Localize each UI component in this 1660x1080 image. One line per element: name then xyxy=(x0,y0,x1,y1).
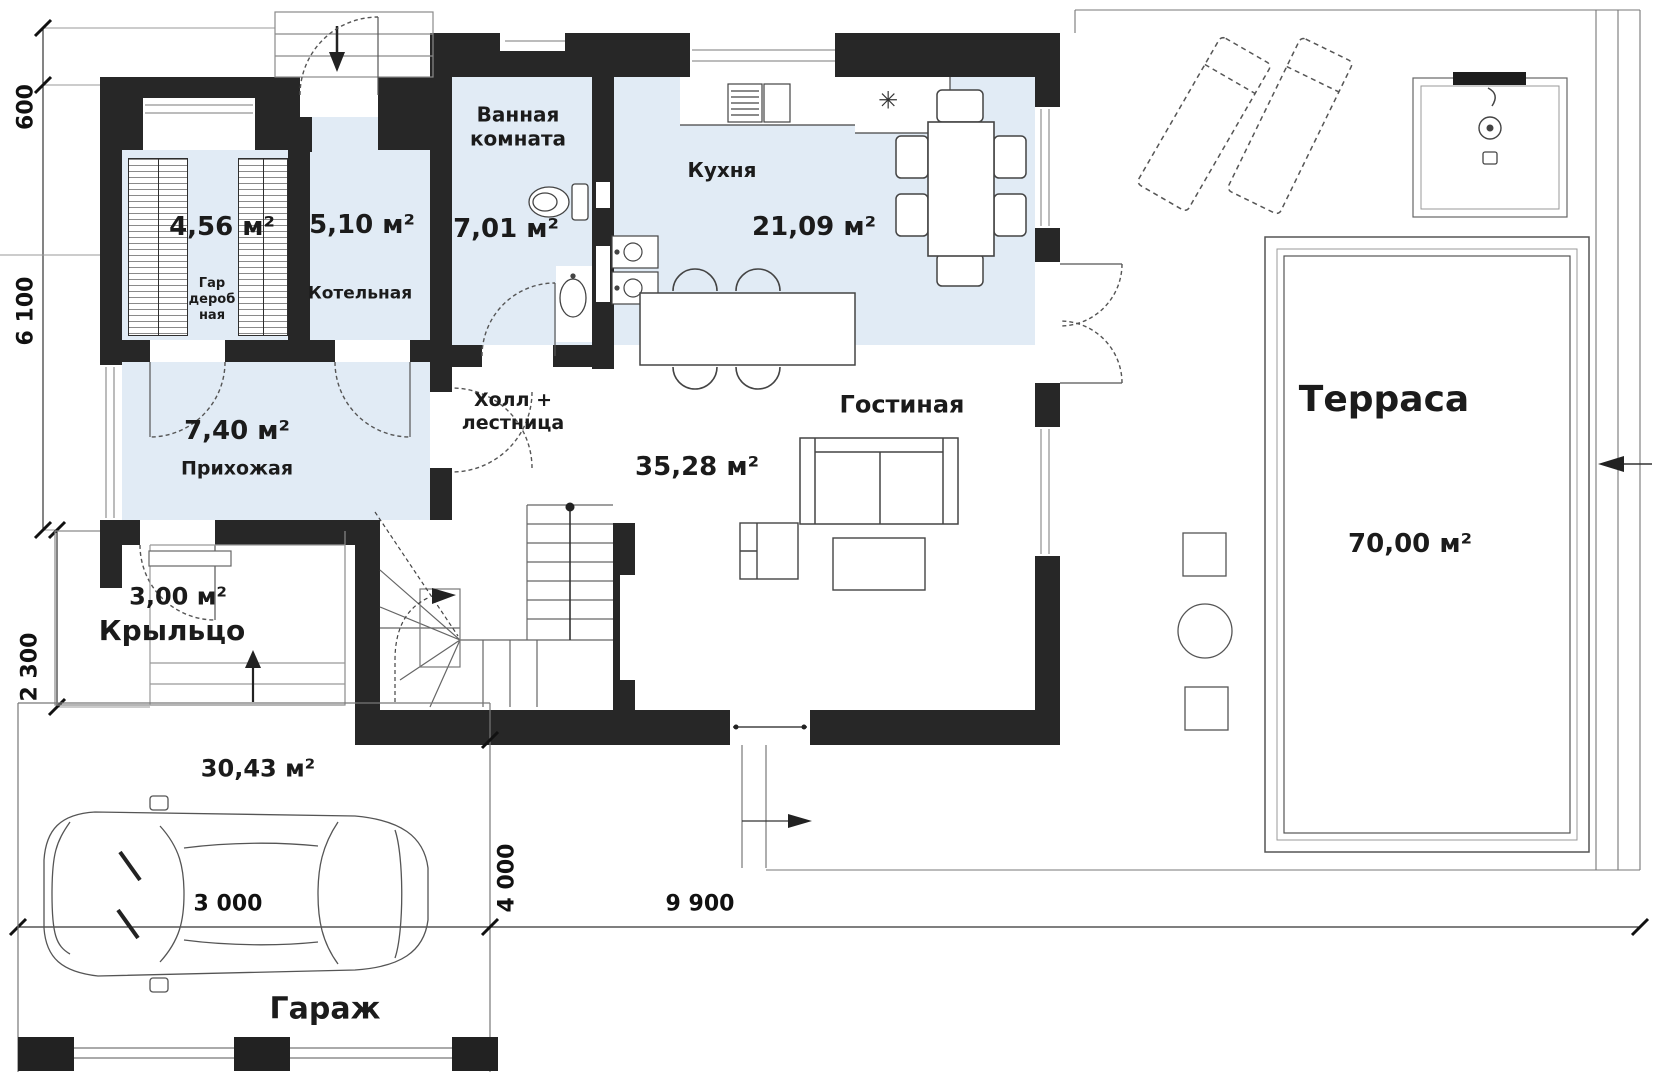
door-arc xyxy=(1060,264,1122,326)
room-name: Котельная xyxy=(308,284,412,305)
wardrobe-rack-icon xyxy=(238,158,288,336)
dimension-label: 2 300 xyxy=(18,633,45,702)
counter xyxy=(680,77,855,125)
terrace-arrow-icon xyxy=(1598,456,1652,472)
lounge-chair-icon xyxy=(1227,37,1354,215)
room-name: Холл + лестница xyxy=(462,389,564,435)
window xyxy=(500,33,565,51)
wall xyxy=(1035,383,1060,427)
door-opening xyxy=(730,710,810,745)
wall xyxy=(410,340,452,362)
wall xyxy=(553,345,592,367)
room-name: Гостиная xyxy=(840,390,965,419)
fridge-niche xyxy=(855,77,950,133)
yard-path xyxy=(742,745,788,868)
door-opening xyxy=(140,520,215,545)
wall xyxy=(1035,556,1060,710)
wall xyxy=(1035,77,1060,107)
door-arc xyxy=(1060,321,1122,383)
coffee-table xyxy=(740,523,925,590)
fridge-icon: ✳ xyxy=(878,86,898,115)
wall xyxy=(452,345,482,367)
garage-posts xyxy=(18,1037,498,1071)
wall xyxy=(100,520,140,545)
wall-niche xyxy=(596,246,610,302)
door-opening xyxy=(1035,262,1060,383)
room-area: 7,01 м² xyxy=(453,214,559,246)
porch-arrow-icon xyxy=(245,650,261,702)
stairs xyxy=(375,503,613,708)
window xyxy=(100,365,122,520)
room-name: Терраса xyxy=(1299,378,1469,422)
outdoor-shower-icon xyxy=(1413,72,1567,217)
wall xyxy=(1035,228,1060,262)
wall-niche xyxy=(620,575,635,680)
wall-niche xyxy=(596,182,610,208)
stairs-up-arrow-icon xyxy=(432,588,456,604)
window xyxy=(1035,427,1060,556)
wall xyxy=(430,468,452,520)
wall xyxy=(288,115,310,342)
sink-counter xyxy=(556,266,592,342)
dimension-label: 3 000 xyxy=(194,892,263,919)
wall xyxy=(810,710,1060,745)
dimension-label: 600 xyxy=(14,84,41,130)
room-name: Ванная комната xyxy=(470,103,566,152)
room-area: 4,56 м² xyxy=(169,212,275,244)
room-area: 35,28 м² xyxy=(635,452,759,484)
wall xyxy=(430,77,452,367)
room-area: 3,00 м² xyxy=(129,582,227,611)
wall xyxy=(592,77,614,369)
path-arrow-icon xyxy=(788,814,812,828)
room-area: 70,00 м² xyxy=(1348,529,1472,561)
terrace-stool-icon xyxy=(1183,533,1228,730)
room-name: Гар дероб ная xyxy=(189,276,236,324)
terrace-table-icon xyxy=(1178,604,1232,658)
sofa-icon xyxy=(800,438,958,524)
room-area: 7,40 м² xyxy=(184,416,290,448)
entrance-steps xyxy=(275,12,433,77)
window xyxy=(1035,107,1060,228)
wall xyxy=(355,520,380,742)
wall xyxy=(122,340,150,362)
entry-opening xyxy=(300,77,378,117)
room-name: Кухня xyxy=(688,158,757,182)
wall xyxy=(378,77,430,150)
wall xyxy=(225,340,335,362)
lounge-chair-icon xyxy=(1136,36,1271,212)
room-name: Крыльцо xyxy=(99,614,245,648)
dimension-label: 9 900 xyxy=(666,892,735,919)
room-area: 21,09 м² xyxy=(752,212,876,244)
entrance-arrow-icon xyxy=(329,26,345,72)
wall xyxy=(355,710,730,745)
dimension-label: 6 100 xyxy=(14,277,41,346)
window xyxy=(143,98,255,150)
floor-plan: 4,56 м² Гар дероб ная 5,10 м² Котельная … xyxy=(0,0,1660,1080)
window xyxy=(690,33,835,77)
wardrobe-rack-icon xyxy=(128,158,188,336)
dimension-label: 4 000 xyxy=(495,844,522,913)
room-area: 30,43 м² xyxy=(201,754,315,783)
room-name: Прихожая xyxy=(181,457,293,480)
room-name: Гараж xyxy=(270,992,381,1029)
room-area: 5,10 м² xyxy=(309,210,415,242)
wall xyxy=(430,362,452,392)
